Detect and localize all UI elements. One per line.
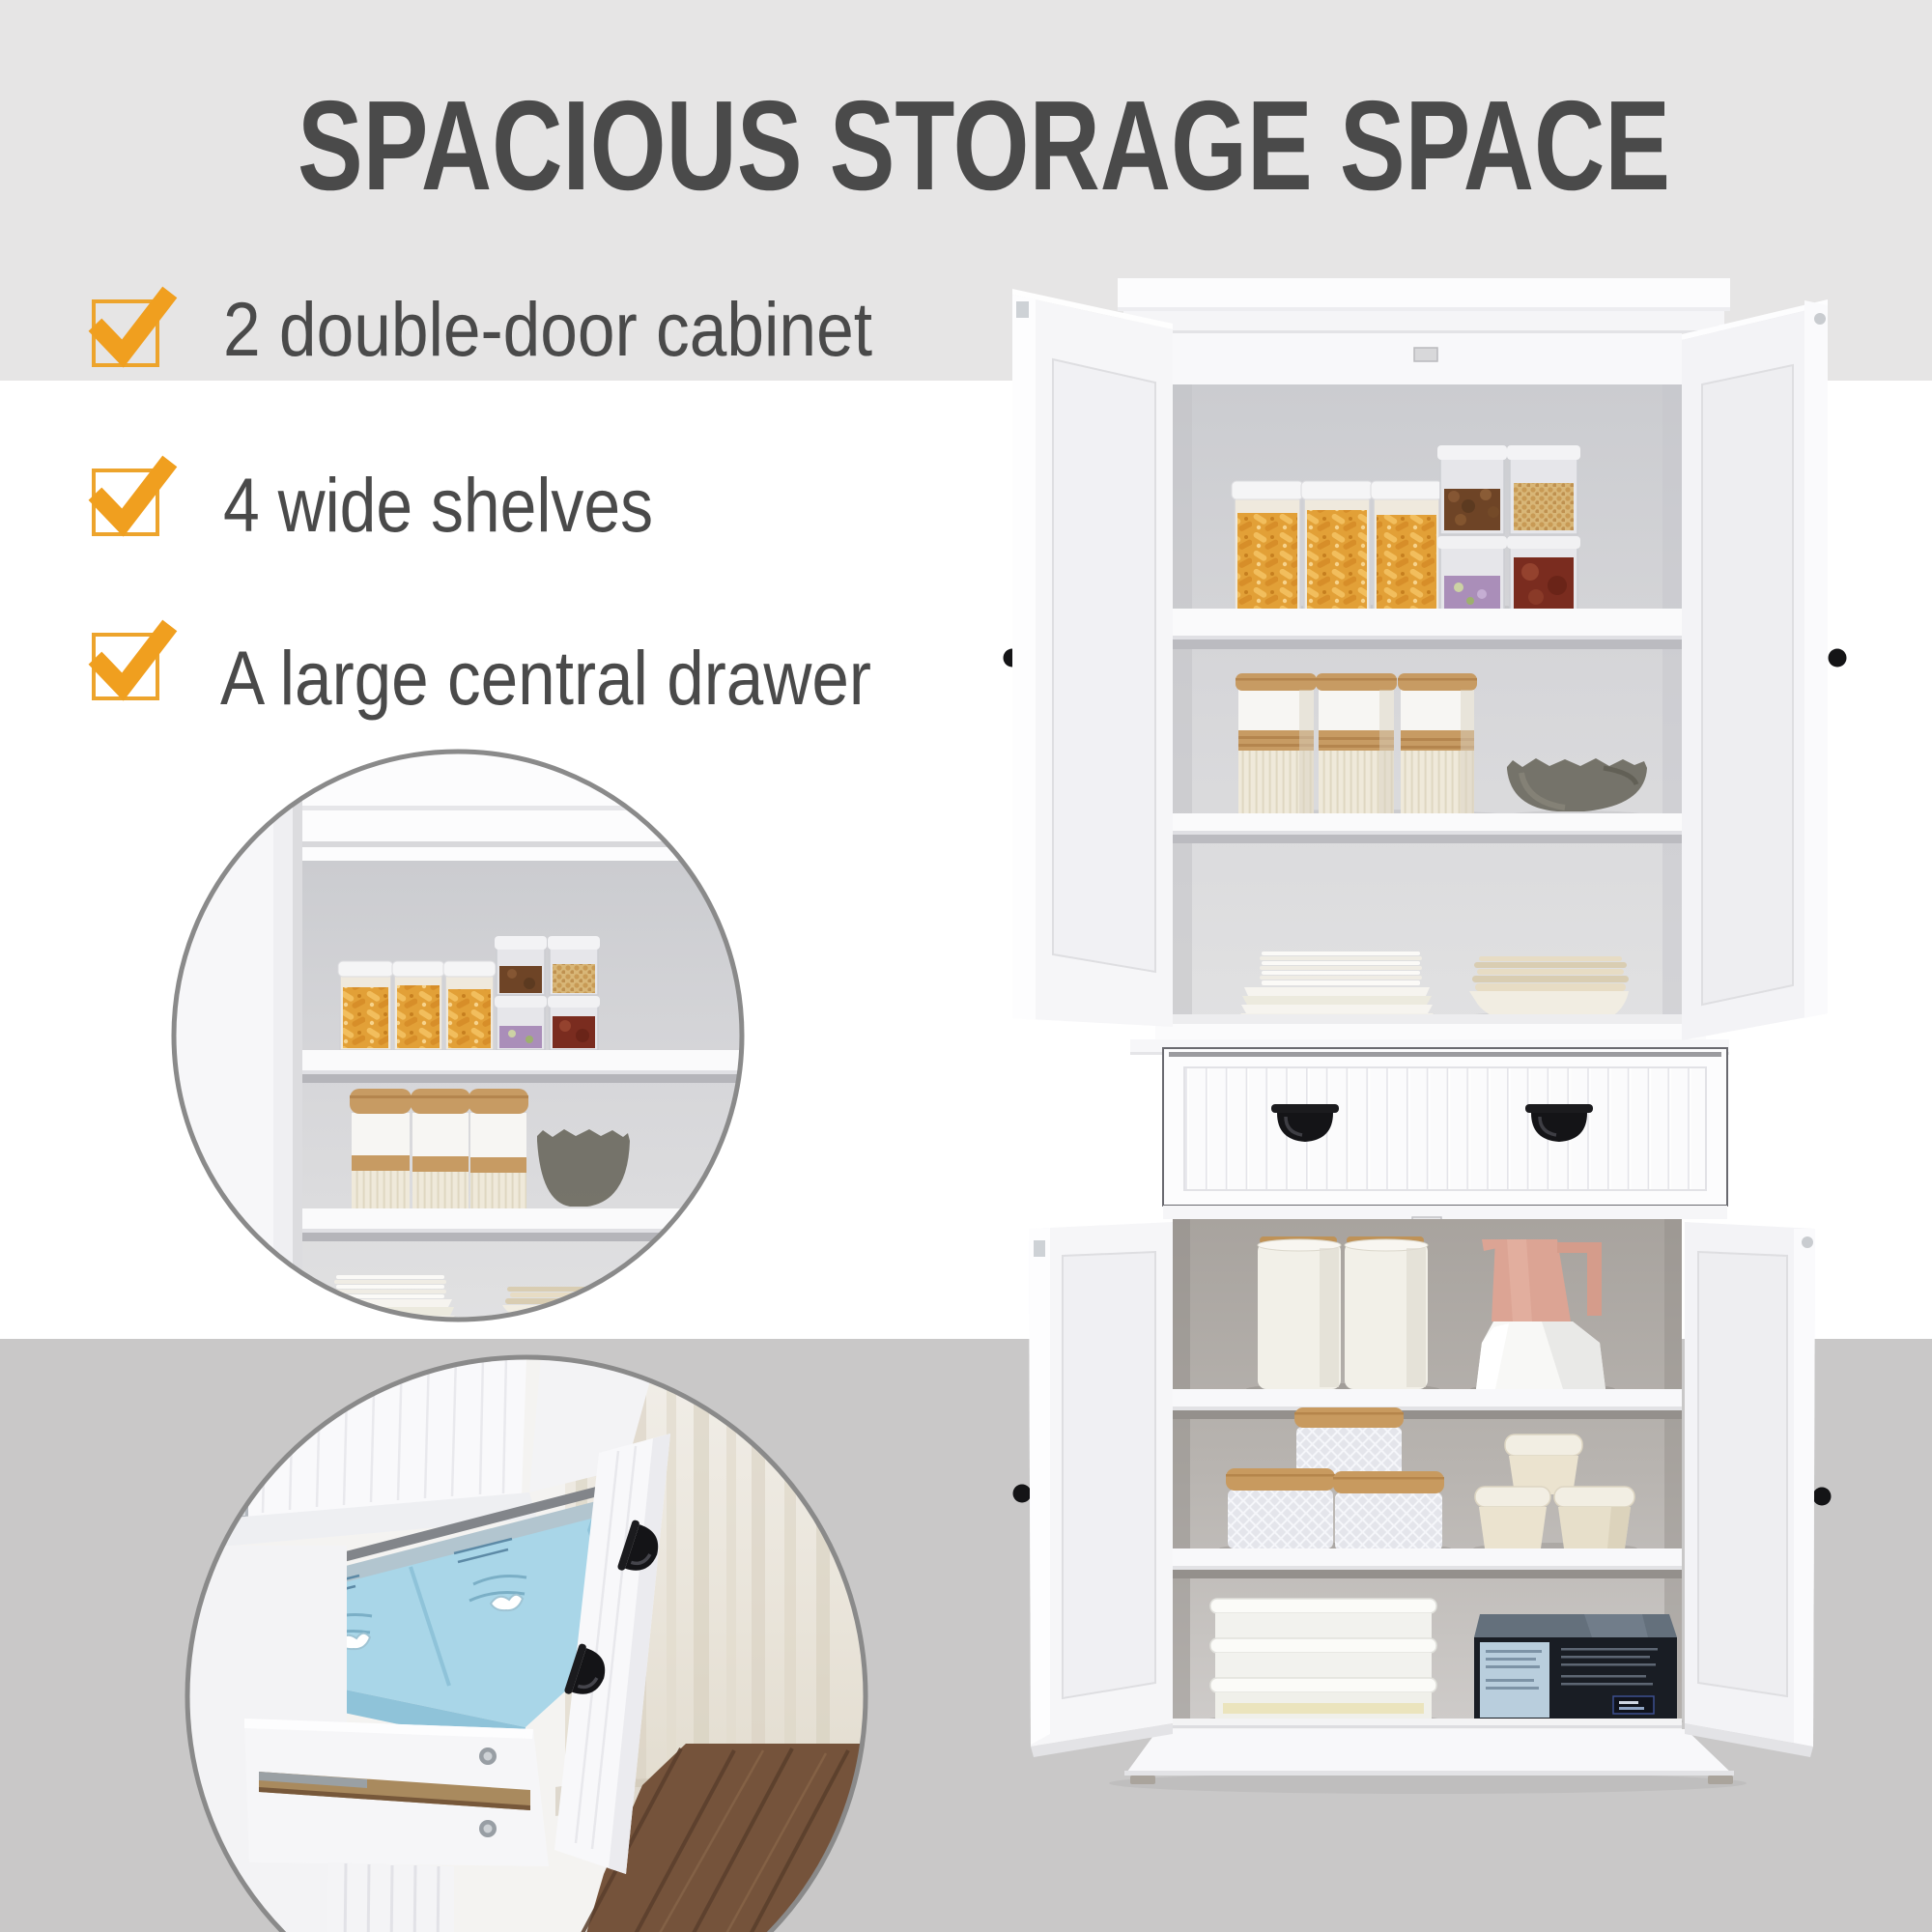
svg-text:SPACIOUS STORAGE SPACE: SPACIOUS STORAGE SPACE <box>298 74 1670 216</box>
svg-text:2 double-door cabinet: 2 double-door cabinet <box>223 286 872 372</box>
svg-text:4 wide shelves: 4 wide shelves <box>223 462 653 548</box>
svg-text:A large central drawer: A large central drawer <box>220 635 871 721</box>
